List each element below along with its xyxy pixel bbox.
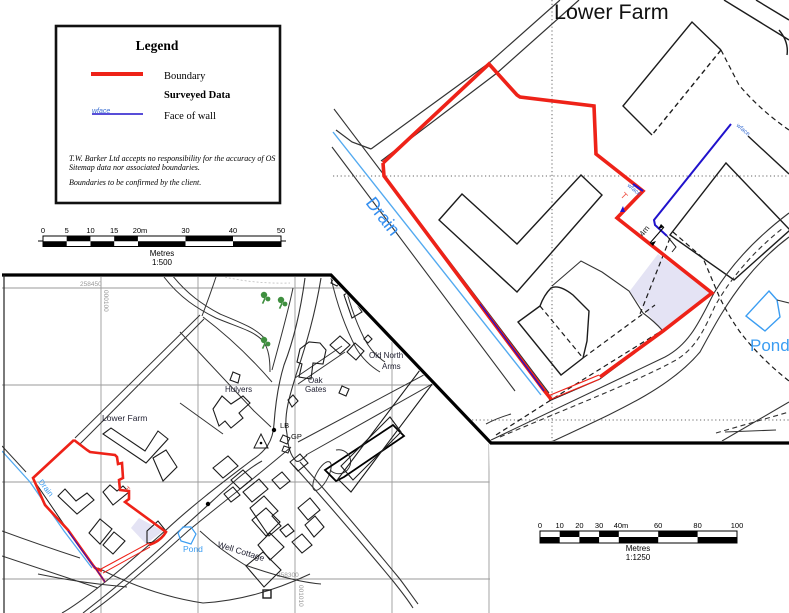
svg-text:Old North: Old North	[369, 351, 403, 360]
svg-text:10: 10	[556, 521, 564, 530]
svg-text:0: 0	[538, 521, 542, 530]
svg-text:Oak: Oak	[308, 376, 324, 385]
svg-text:50: 50	[277, 226, 285, 235]
svg-text:30: 30	[181, 226, 189, 235]
svg-text:258450: 258450	[80, 281, 102, 288]
svg-text:60: 60	[654, 521, 662, 530]
svg-text:T.W. Barker Ltd accepts no res: T.W. Barker Ltd accepts no responsibilit…	[69, 154, 275, 163]
svg-text:30: 30	[595, 521, 603, 530]
svg-text:40: 40	[229, 226, 237, 235]
svg-text:Arms: Arms	[382, 362, 401, 371]
svg-text:1:500: 1:500	[152, 258, 173, 267]
svg-text:Metres: Metres	[626, 544, 650, 553]
svg-text:GP: GP	[291, 432, 302, 441]
svg-text:20m: 20m	[133, 226, 148, 235]
svg-text:Legend: Legend	[136, 38, 179, 53]
svg-text:Surveyed Data: Surveyed Data	[164, 90, 231, 101]
svg-text:100: 100	[731, 521, 744, 530]
svg-text:Lower Farm: Lower Farm	[554, 0, 669, 24]
svg-text:Face of wall: Face of wall	[164, 111, 216, 122]
svg-text:40m: 40m	[614, 521, 629, 530]
svg-text:0: 0	[41, 226, 45, 235]
svg-text:Pond: Pond	[750, 336, 789, 355]
svg-text:Metres: Metres	[150, 249, 174, 258]
svg-text:20: 20	[575, 521, 583, 530]
svg-text:Lower Farm: Lower Farm	[102, 413, 147, 423]
svg-text:1:1250: 1:1250	[626, 553, 651, 562]
svg-text:000100: 000100	[102, 290, 109, 312]
svg-text:Pond: Pond	[183, 544, 203, 554]
svg-text:001010: 001010	[297, 585, 304, 607]
svg-text:Gates: Gates	[305, 385, 326, 394]
svg-text:15: 15	[110, 226, 118, 235]
svg-text:80: 80	[693, 521, 701, 530]
svg-text:LB: LB	[280, 421, 289, 430]
svg-text:Sitemap data nor associated bo: Sitemap data nor associated boundaries.	[69, 163, 200, 172]
svg-text:Boundary: Boundary	[164, 71, 206, 82]
svg-text:wface: wface	[92, 108, 110, 115]
svg-text:5: 5	[65, 226, 69, 235]
svg-text:10: 10	[86, 226, 94, 235]
svg-text:Hulyers: Hulyers	[225, 385, 252, 394]
svg-text:Boundaries to be confirmed by: Boundaries to be confirmed by the client…	[69, 178, 201, 187]
